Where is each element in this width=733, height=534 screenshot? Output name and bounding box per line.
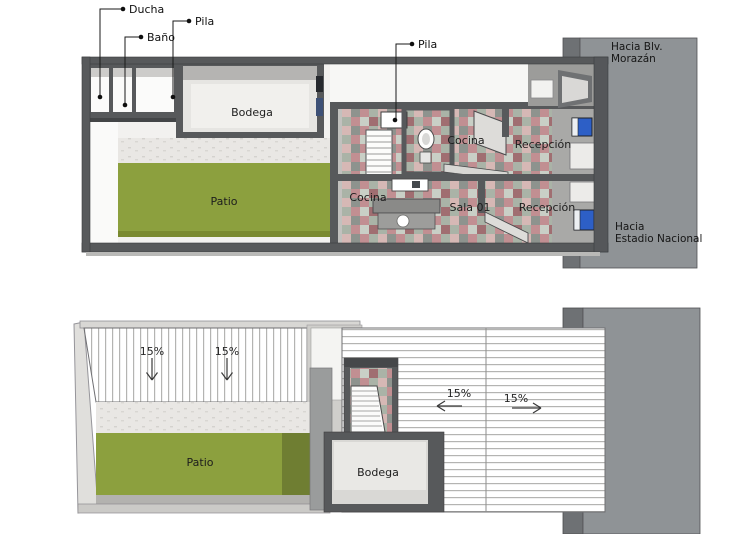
label-bodega-upper: Bodega xyxy=(231,106,273,119)
label-recepcion-lower: Recepción xyxy=(519,201,576,214)
units-mid-wall xyxy=(338,174,596,181)
callout-dot-icon xyxy=(121,7,126,12)
bodega-wall-window-1 xyxy=(316,76,323,92)
room-bodega-upper xyxy=(176,60,324,138)
unit-upper-side-opening xyxy=(570,143,596,169)
stove xyxy=(412,181,420,188)
callout-dot-icon xyxy=(139,35,144,40)
sink xyxy=(420,152,431,163)
lower-gravel-band xyxy=(96,402,310,433)
callout-pila-left-label: Pila xyxy=(195,15,214,28)
table-plate xyxy=(397,215,409,227)
lower-stairwell xyxy=(344,358,398,436)
bodega-wall-window-2 xyxy=(316,98,323,116)
street-south-line1: Hacia xyxy=(615,221,644,233)
upper-plan: Ducha Pila Baño Pila Bodega Patio Cocina… xyxy=(82,3,608,256)
callout-dot-icon xyxy=(410,42,415,47)
street-label-north: Hacia Blv. Morazán xyxy=(611,41,663,65)
callout-pila-center-label: Pila xyxy=(418,38,437,51)
lower-bottom-wall xyxy=(78,504,330,513)
unit-upper-window xyxy=(572,118,592,136)
kitchen-counter xyxy=(392,179,428,191)
roof-left-striped xyxy=(84,328,307,402)
plan-drawing: Ducha Pila Baño Pila Bodega Patio Cocina… xyxy=(0,0,733,534)
callout-bano-label: Baño xyxy=(147,31,175,44)
label-sala-01: Sala 01 xyxy=(449,201,490,214)
slope-label-right-east: 15% xyxy=(504,392,528,405)
lower-plan: 15% 15% 15% 15% Patio Bodega xyxy=(74,321,605,513)
slope-label-left-b: 15% xyxy=(215,345,239,358)
street-south-line2: Estadio Nacional xyxy=(615,233,702,245)
callout-dot-icon xyxy=(171,95,176,100)
callout-ducha-label: Ducha xyxy=(129,3,164,16)
upper-patio-shadow xyxy=(118,231,332,237)
label-cocina-upper: Cocina xyxy=(447,134,484,147)
label-patio-lower: Patio xyxy=(187,456,214,469)
callout-dot-icon xyxy=(187,19,192,24)
label-bodega-lower: Bodega xyxy=(357,466,399,479)
unit-lower-window xyxy=(574,210,594,230)
lower-patio-shadow xyxy=(282,433,310,495)
upper-plan-stairs xyxy=(366,130,392,178)
upper-corridor xyxy=(330,64,530,104)
label-recepcion-upper: Recepción xyxy=(515,138,572,151)
street-north-line2: Morazán xyxy=(611,53,656,65)
corner-room xyxy=(528,64,596,108)
plan-sheet: Ducha Pila Baño Pila Bodega Patio Cocina… xyxy=(0,0,733,534)
callout-dot-icon xyxy=(123,103,128,108)
unit-lower-side-opening xyxy=(570,182,596,202)
upper-gravel-band xyxy=(118,138,332,165)
callout-dot-icon xyxy=(393,118,398,123)
callout-dot-icon xyxy=(98,95,103,100)
street-north-line1: Hacia Blv. xyxy=(611,41,663,53)
label-patio-upper: Patio xyxy=(211,195,238,208)
slope-label-left-a: 15% xyxy=(140,345,164,358)
slope-label-right-west: 15% xyxy=(447,387,471,400)
label-cocina-lower: Cocina xyxy=(349,191,386,204)
